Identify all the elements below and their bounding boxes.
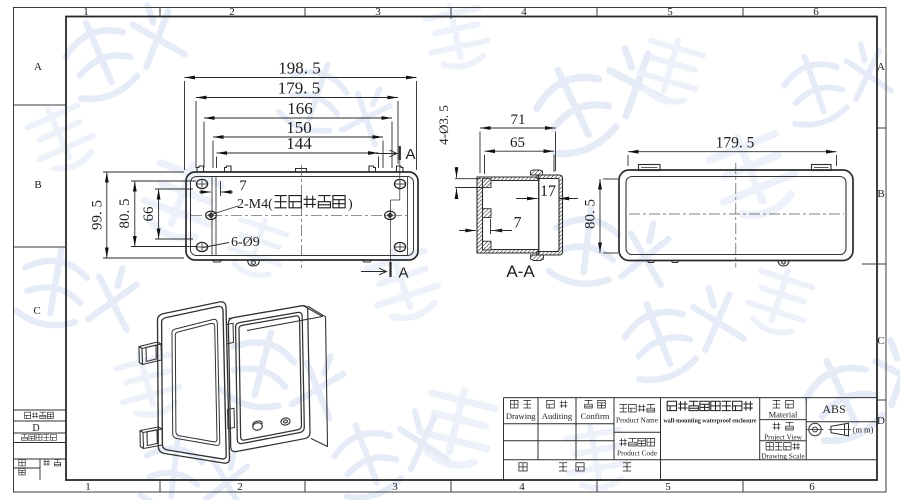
svg-text:166: 166 [287,99,313,118]
svg-text:Drawing: Drawing [506,411,536,421]
svg-text:179. 5: 179. 5 [278,79,321,98]
svg-text:80. 5: 80. 5 [117,199,133,229]
svg-text:Confirm: Confirm [581,411,610,421]
svg-text:Project View: Project View [764,433,802,442]
svg-text:4-Ø3. 5: 4-Ø3. 5 [436,105,451,145]
svg-text:7: 7 [514,215,522,232]
svg-text:B: B [877,188,884,200]
svg-text:179. 5: 179. 5 [716,135,755,152]
svg-text:A: A [34,61,42,73]
svg-text:ABS: ABS [822,402,845,416]
svg-text:4: 4 [519,481,525,493]
svg-text:C: C [877,335,884,347]
svg-text:99. 5: 99. 5 [90,200,106,230]
svg-text:6-Ø9: 6-Ø9 [231,235,260,250]
svg-text:A: A [877,61,885,73]
svg-text:1: 1 [85,481,91,493]
svg-text:2: 2 [229,6,235,18]
svg-text:Product Code: Product Code [617,449,657,458]
svg-text:Auditing: Auditing [542,411,573,421]
svg-text:17: 17 [540,183,556,200]
svg-text:A-A: A-A [506,262,535,281]
svg-text:A: A [405,146,415,163]
svg-text:B: B [34,179,41,191]
svg-text:Drawing Scale: Drawing Scale [761,452,804,461]
svg-text:): ) [348,197,353,212]
svg-text:5: 5 [667,6,673,18]
svg-text:6: 6 [813,6,819,18]
svg-text:(m m): (m m) [852,425,873,435]
svg-text:D: D [877,415,885,427]
svg-text:wall-mounting waterproof enclo: wall-mounting waterproof enclosure [663,419,756,425]
svg-text:71: 71 [511,112,526,128]
svg-text:Material: Material [769,410,798,420]
svg-text:80. 5: 80. 5 [583,199,599,229]
svg-text:4: 4 [521,6,527,18]
svg-text:65: 65 [510,135,525,151]
svg-text:144: 144 [286,134,312,153]
svg-text:6: 6 [809,481,815,493]
svg-text:Product Name: Product Name [616,416,658,425]
svg-text:66: 66 [141,206,157,222]
svg-text:2: 2 [237,481,243,493]
svg-text:5: 5 [665,481,671,493]
svg-text:3: 3 [392,481,398,493]
svg-text:2-M4(: 2-M4( [237,197,273,212]
svg-text:198. 5: 198. 5 [278,59,321,78]
svg-text:D: D [32,423,39,434]
svg-text:3: 3 [375,6,381,18]
svg-text:7: 7 [239,178,247,194]
svg-text:C: C [33,305,40,317]
svg-text:1: 1 [83,6,89,18]
svg-text:A: A [398,265,408,282]
